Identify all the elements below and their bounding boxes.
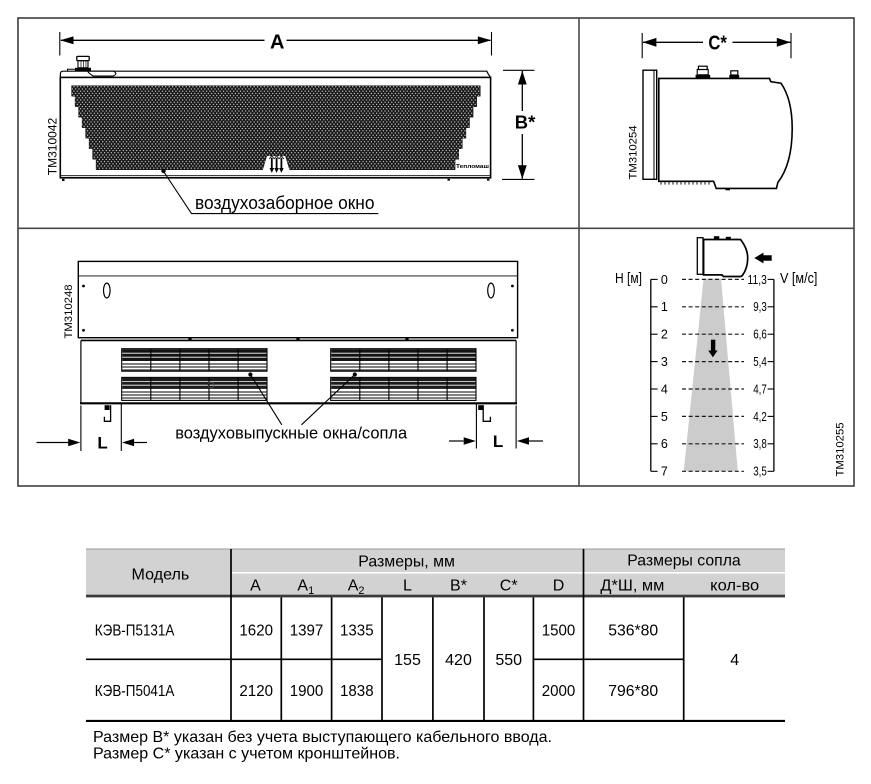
svg-text:5,4: 5,4 [753, 355, 767, 369]
svg-text:2000: 2000 [542, 683, 576, 700]
svg-text:V [м/с]: V [м/с] [780, 270, 817, 287]
svg-text:H [м]: H [м] [615, 270, 642, 287]
svg-text:C*: C* [708, 32, 727, 54]
svg-text:L: L [403, 577, 412, 594]
svg-text:7: 7 [661, 465, 668, 479]
svg-text:Д*Ш, мм: Д*Ш, мм [600, 577, 664, 594]
svg-text:Размеры, мм: Размеры, мм [358, 554, 455, 571]
svg-text:550: 550 [495, 652, 522, 669]
svg-text:4: 4 [730, 652, 739, 669]
svg-text:Модель: Модель [132, 566, 190, 583]
svg-text:TM310254: TM310254 [628, 125, 640, 179]
svg-text:Размер C* указан с учетом крон: Размер C* указан с учетом кронштейнов. [93, 746, 400, 763]
svg-text:796*80: 796*80 [608, 683, 658, 700]
svg-text:L: L [97, 434, 107, 453]
svg-text:1397: 1397 [290, 622, 324, 639]
svg-text:КЭВ-П5131А: КЭВ-П5131А [95, 622, 175, 639]
svg-text:4,2: 4,2 [753, 410, 767, 424]
svg-text:A: A [250, 577, 261, 594]
svg-text:0: 0 [661, 273, 668, 287]
svg-text:1500: 1500 [542, 622, 576, 639]
svg-text:2: 2 [661, 328, 668, 342]
svg-text:4: 4 [661, 382, 668, 396]
svg-text:B*: B* [450, 577, 467, 594]
svg-text:TM310248: TM310248 [63, 284, 75, 338]
svg-text:TM310255: TM310255 [835, 422, 847, 476]
svg-text:11,3: 11,3 [748, 273, 767, 287]
svg-text:КЭВ-П5041А: КЭВ-П5041А [95, 683, 175, 700]
svg-text:Тепломаш: Тепломаш [456, 164, 489, 170]
svg-text:3,5: 3,5 [753, 465, 767, 479]
svg-text:6,6: 6,6 [753, 328, 767, 342]
svg-text:9,3: 9,3 [753, 300, 767, 314]
svg-text:A: A [270, 31, 284, 53]
svg-text:Размеры сопла: Размеры сопла [627, 553, 740, 570]
svg-text:1900: 1900 [290, 683, 324, 700]
svg-text:4,7: 4,7 [753, 382, 767, 396]
svg-text:155: 155 [394, 652, 421, 669]
svg-text:D: D [553, 577, 565, 594]
svg-text:1: 1 [661, 300, 668, 314]
svg-text:C*: C* [500, 577, 518, 594]
svg-text:Размер B* указан без учета выс: Размер B* указан без учета выступающего … [93, 729, 552, 746]
svg-text:1335: 1335 [340, 622, 374, 639]
svg-text:1838: 1838 [340, 683, 374, 700]
svg-text:2120: 2120 [239, 683, 273, 700]
svg-text:1620: 1620 [239, 622, 273, 639]
svg-text:L: L [493, 432, 503, 451]
svg-text:5: 5 [661, 410, 668, 424]
svg-text:воздухозаборное окно: воздухозаборное окно [195, 192, 375, 213]
svg-text:кол-во: кол-во [710, 577, 759, 594]
svg-text:6: 6 [661, 437, 668, 451]
svg-text:3,8: 3,8 [753, 437, 767, 451]
svg-text:3: 3 [661, 355, 668, 369]
svg-text:420: 420 [445, 652, 472, 669]
svg-text:B*: B* [515, 111, 536, 132]
svg-text:TM310042: TM310042 [46, 117, 60, 175]
svg-text:воздуховыпускные окна/сопла: воздуховыпускные окна/сопла [175, 424, 408, 443]
svg-text:536*80: 536*80 [608, 622, 658, 639]
